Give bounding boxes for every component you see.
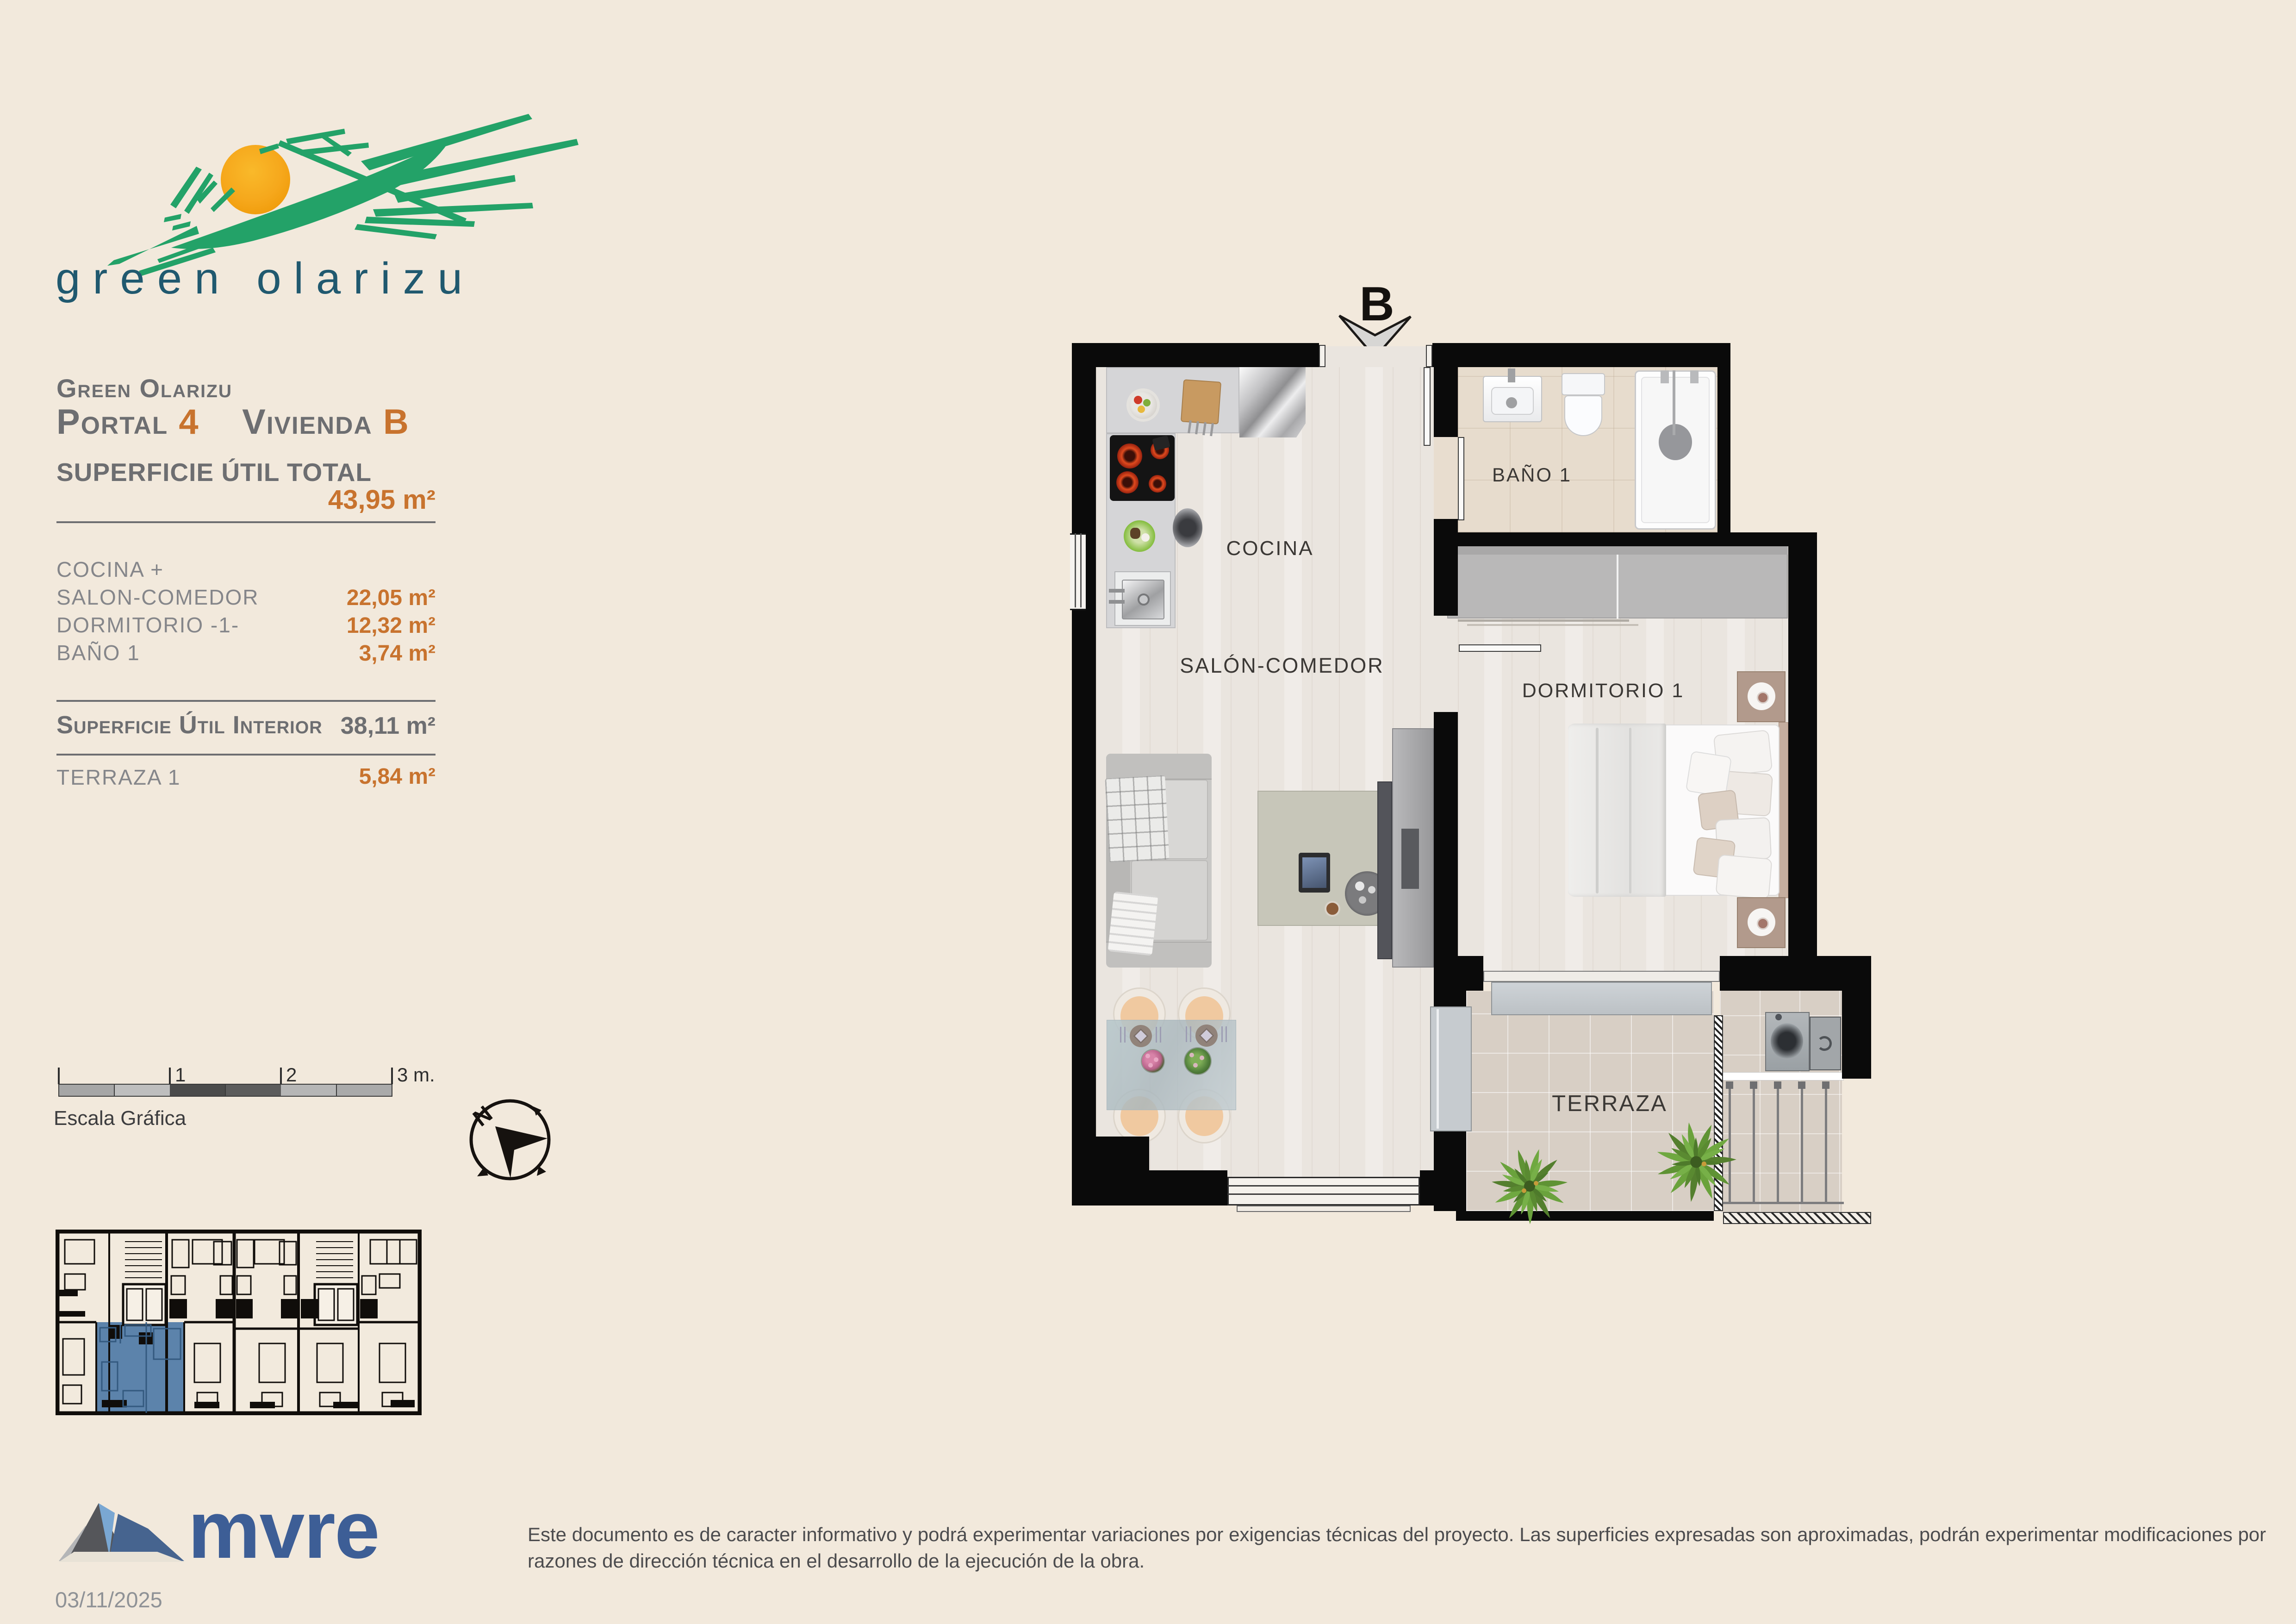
svg-text:2: 2 <box>286 1064 297 1086</box>
svg-text:3 m.: 3 m. <box>397 1064 435 1086</box>
svg-text:green olarizu: green olarizu <box>56 254 475 303</box>
svg-text:1: 1 <box>175 1064 186 1086</box>
svg-text:Escala Gráfica: Escala Gráfica <box>54 1107 187 1130</box>
